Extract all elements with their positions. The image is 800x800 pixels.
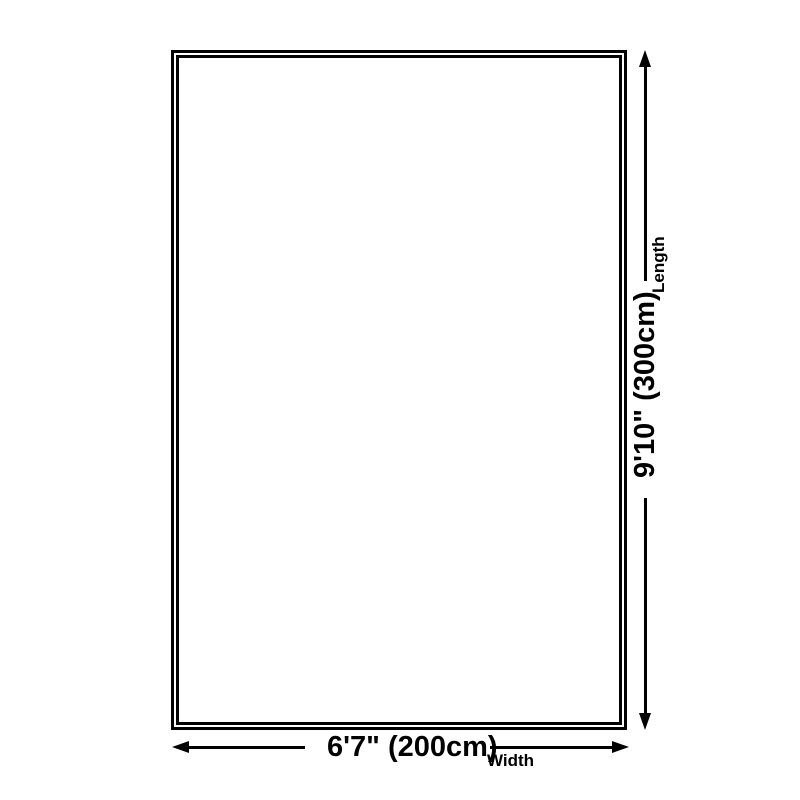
product-outline [171,50,627,730]
width-label: Width [487,752,534,769]
dimension-line-segment [490,746,613,749]
width-dimension: 6'7" (200cm) Width [172,726,629,770]
arrow-up-icon [639,50,651,67]
length-label: Length [650,236,667,293]
dimension-line-segment [644,498,647,718]
dimension-line-segment [644,66,647,281]
dimension-line-segment [184,746,305,749]
arrow-right-icon [612,741,629,753]
size-diagram: 9'10" (300cm) Length 6'7" (200cm) Width [0,0,800,800]
length-dimension: 9'10" (300cm) Length [624,50,668,730]
width-value: 6'7" (200cm) [327,733,473,762]
length-value: 9'10" (300cm) [631,308,660,478]
product-outline-inner-border [176,55,622,725]
